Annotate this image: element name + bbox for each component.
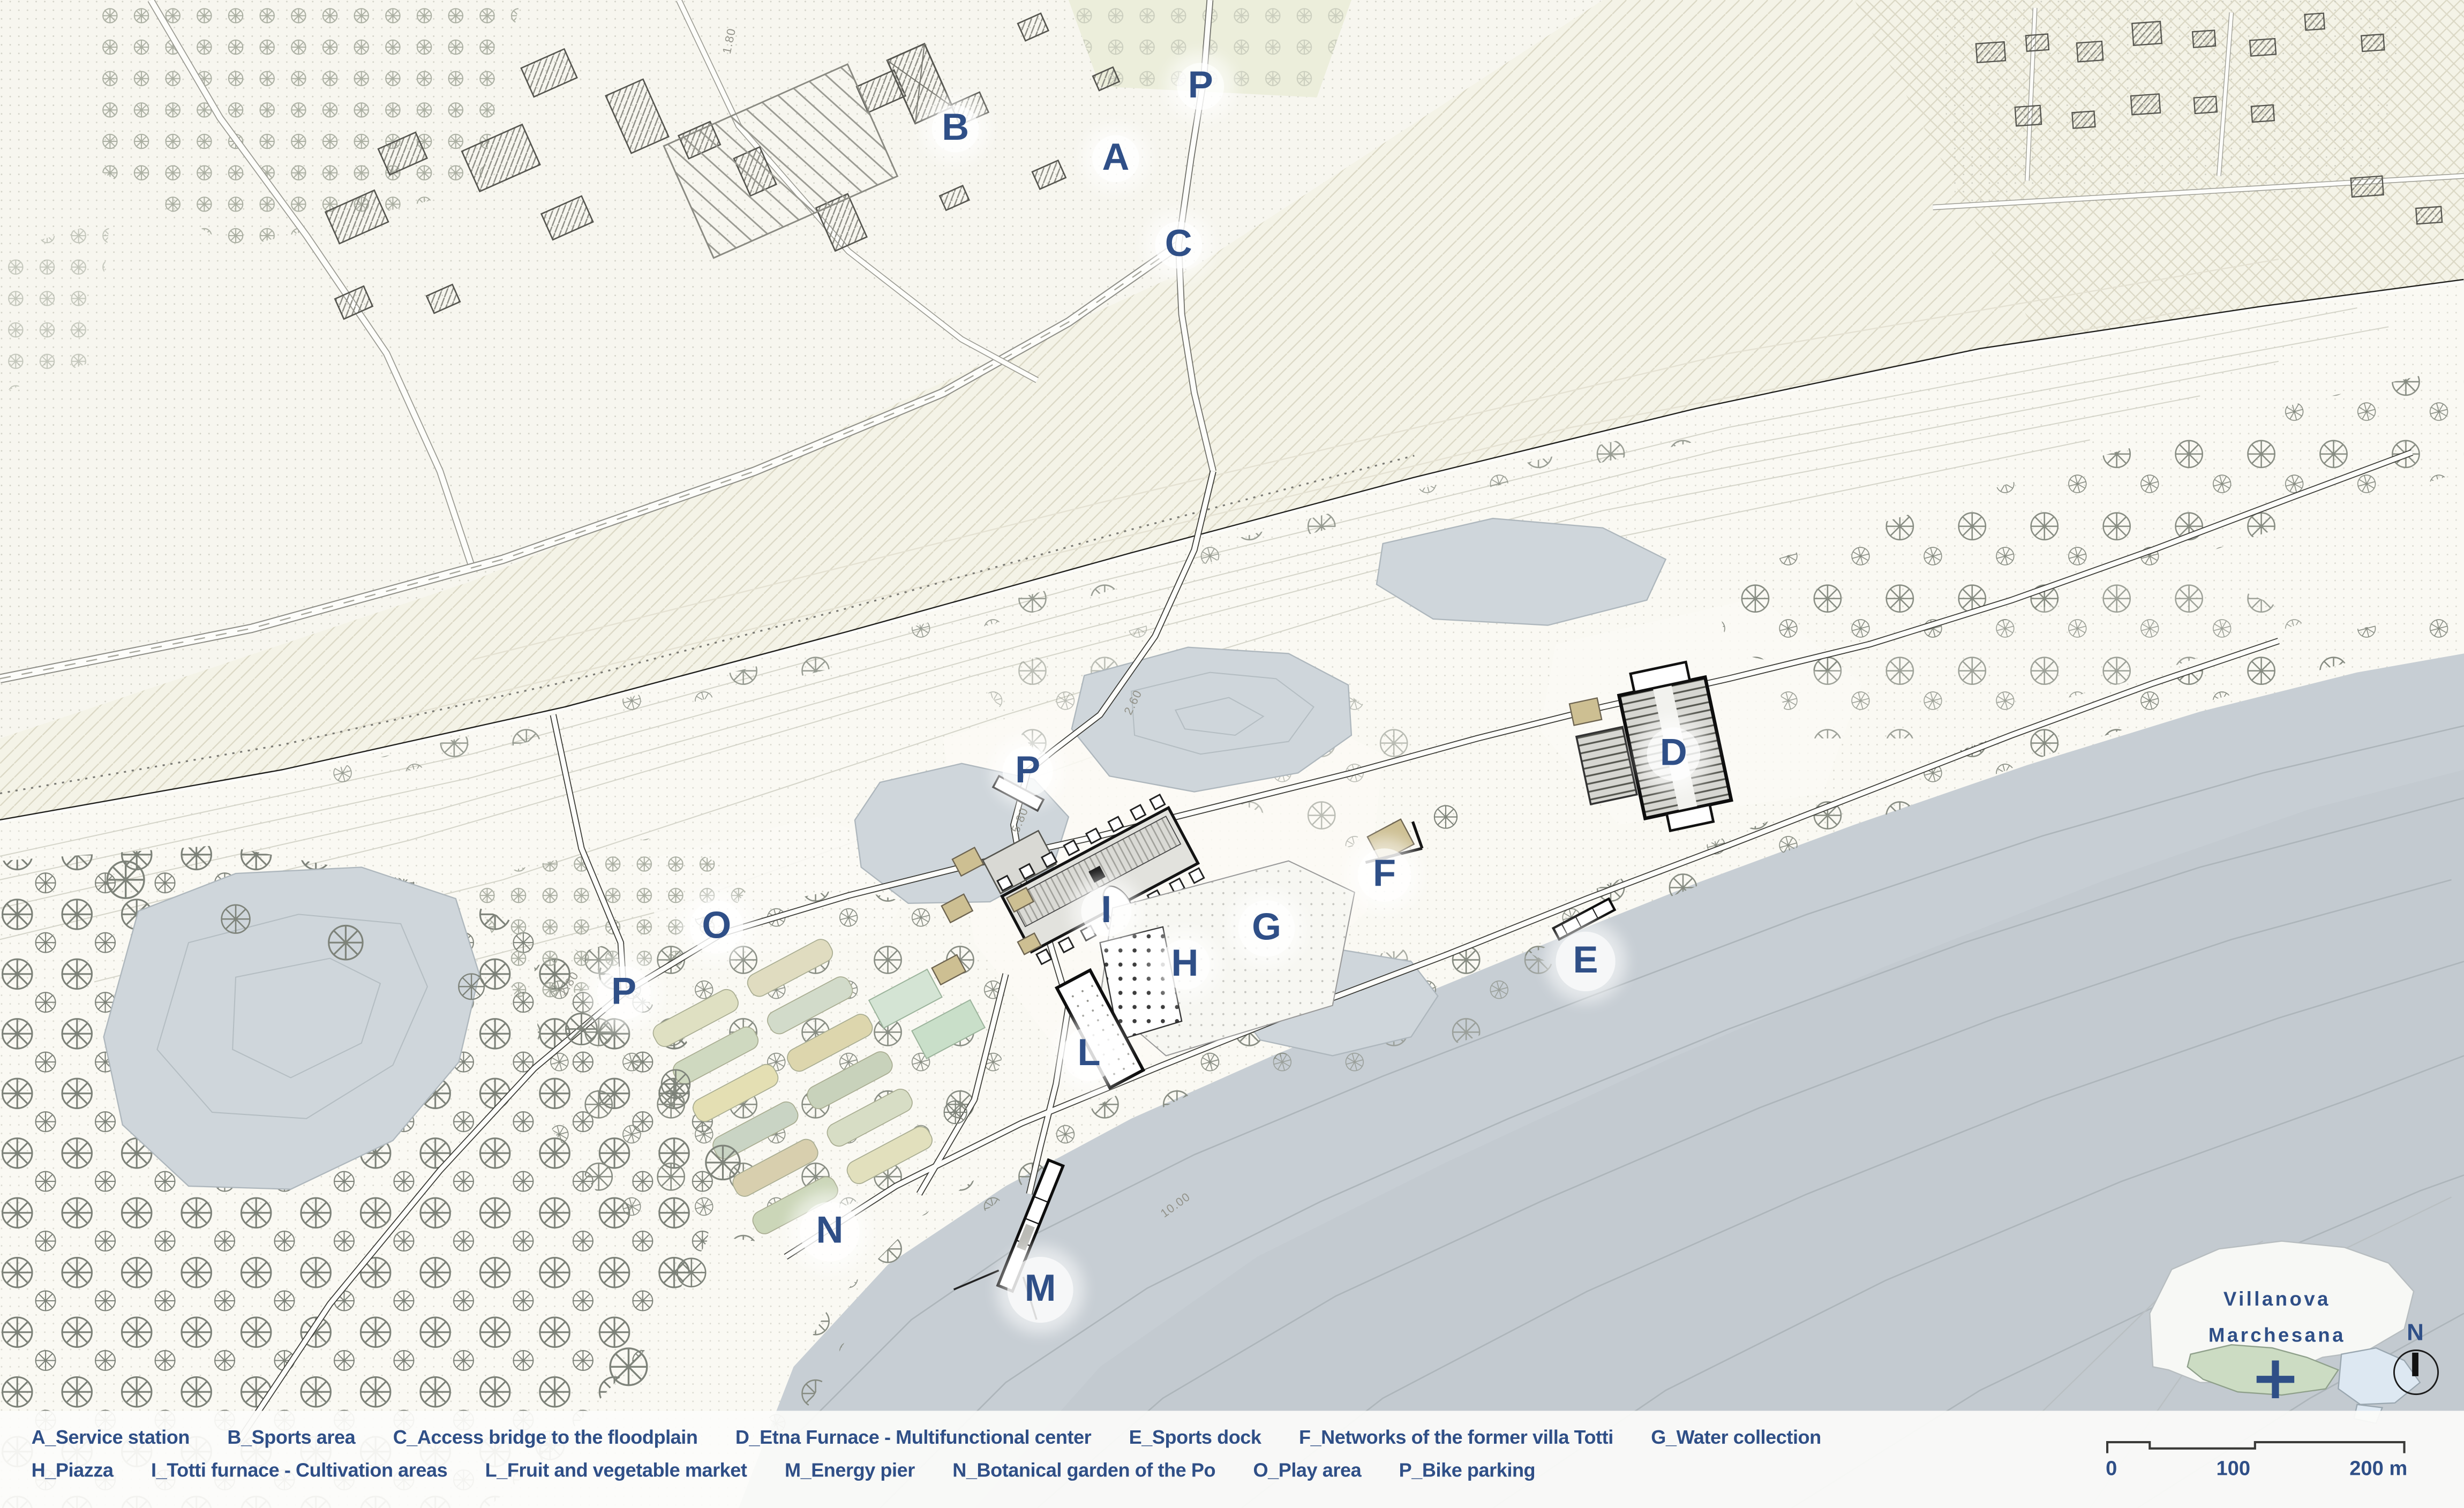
scale-bar-labels: 0100200 m xyxy=(2106,1457,2407,1480)
map-marker-A: A xyxy=(1092,135,1139,182)
map-marker-P: P xyxy=(1003,746,1053,796)
legend-item: M_Energy pier xyxy=(785,1455,915,1488)
inset-title-line2: Marchesana xyxy=(2208,1324,2346,1346)
legend-item: D_Etna Furnace - Multifunctional center xyxy=(735,1422,1091,1455)
map-marker-L: L xyxy=(1062,1028,1116,1081)
map-marker-P: P xyxy=(1177,63,1224,110)
masterplan-viewport: BAPCPIHGFDEOPLNM 1.805.802.602.8010.00 V… xyxy=(0,0,2464,1508)
north-arrow: N xyxy=(2387,1319,2444,1395)
map-marker-D: D xyxy=(1647,727,1700,781)
map-canvas xyxy=(0,0,2464,1508)
scale-label: 200 m xyxy=(2349,1457,2407,1480)
map-marker-I: I xyxy=(1081,886,1131,937)
north-label: N xyxy=(2387,1319,2444,1346)
legend-item: L_Fruit and vegetable market xyxy=(485,1455,747,1488)
scale-label: 0 xyxy=(2106,1457,2117,1480)
inset-title-line1: Villanova xyxy=(2223,1288,2331,1310)
legend-item: E_Sports dock xyxy=(1129,1422,1261,1455)
legend-item: I_Totti furnace - Cultivation areas xyxy=(151,1455,447,1488)
legend-bar: A_Service stationB_Sports areaC_Access b… xyxy=(0,1411,2464,1508)
legend-item: B_Sports area xyxy=(227,1422,355,1455)
map-marker-H: H xyxy=(1160,939,1210,990)
map-marker-P: P xyxy=(597,966,651,1020)
scale-bar-line xyxy=(2106,1439,2407,1454)
legend-item: N_Botanical garden of the Po xyxy=(952,1455,1215,1488)
legend-item: O_Play area xyxy=(1253,1455,1361,1488)
map-marker-C: C xyxy=(1155,222,1202,269)
map-marker-E: E xyxy=(1556,932,1615,991)
scale-bar: 0100200 m xyxy=(2106,1439,2407,1480)
masterplan-stage: BAPCPIHGFDEOPLNM 1.805.802.602.8010.00 V… xyxy=(0,0,2464,1508)
scale-label: 100 xyxy=(2216,1457,2250,1480)
north-circle-icon xyxy=(2393,1349,2438,1395)
legend-row-2: H_PiazzaI_Totti furnace - Cultivation ar… xyxy=(32,1455,2464,1488)
legend-row-1: A_Service stationB_Sports areaC_Access b… xyxy=(32,1422,2464,1455)
map-marker-O: O xyxy=(690,900,743,954)
legend-item: A_Service station xyxy=(32,1422,190,1455)
map-marker-G: G xyxy=(1238,900,1295,957)
legend-item: C_Access bridge to the floodplain xyxy=(393,1422,698,1455)
map-marker-B: B xyxy=(932,105,979,153)
map-marker-N: N xyxy=(800,1202,859,1261)
map-marker-M: M xyxy=(1007,1257,1073,1323)
map-marker-F: F xyxy=(1358,848,1411,902)
legend-item: P_Bike parking xyxy=(1399,1455,1535,1488)
legend-item: H_Piazza xyxy=(32,1455,114,1488)
legend-item: G_Water collection xyxy=(1651,1422,1821,1455)
legend-item: F_Networks of the former villa Totti xyxy=(1299,1422,1613,1455)
